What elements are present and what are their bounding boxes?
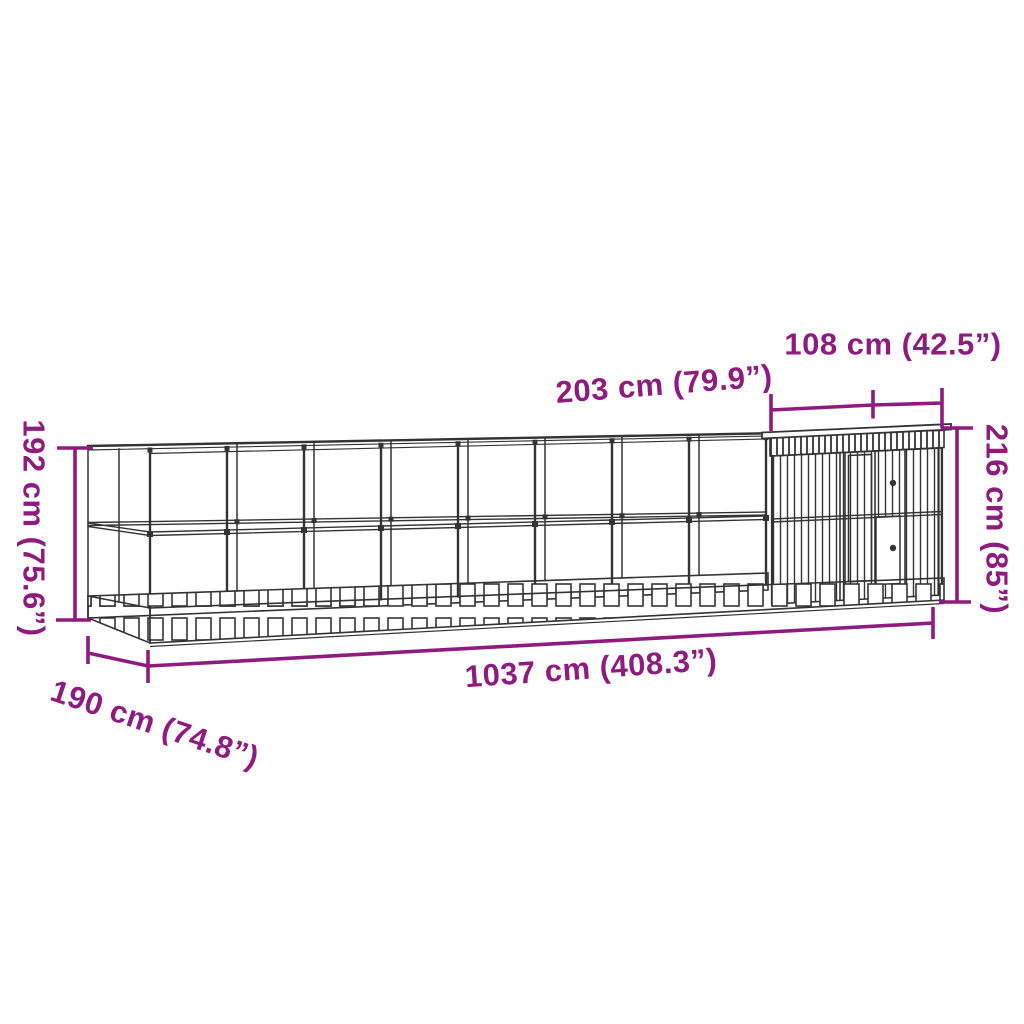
cage-base-skirt <box>88 573 944 647</box>
cage-mid-rails <box>88 512 766 536</box>
door-handle-lower <box>890 545 896 551</box>
house-lower-door <box>876 516 900 585</box>
door-handle-upper <box>890 480 896 486</box>
dim-height-right-line <box>939 428 973 602</box>
label-segment-top: 203 cm (79.9”) <box>554 358 773 410</box>
label-height-left: 192 cm (75.6”) <box>17 419 52 636</box>
dim-top-segments-line <box>771 388 942 431</box>
house-extension-drawing <box>770 429 944 605</box>
aviary-dimension-diagram: 192 cm (75.6”) 216 cm (85”) 203 cm (79.9… <box>0 0 1024 1024</box>
dim-depth-line <box>88 636 148 683</box>
label-depth: 190 cm (74.8”) <box>46 673 263 775</box>
label-house-width: 108 cm (42.5”) <box>784 327 1001 362</box>
label-length-total: 1037 cm (408.3”) <box>464 642 719 695</box>
label-height-right: 216 cm (85”) <box>980 424 1015 614</box>
product-dimension-image: 192 cm (75.6”) 216 cm (85”) 203 cm (79.9… <box>0 0 1024 1024</box>
